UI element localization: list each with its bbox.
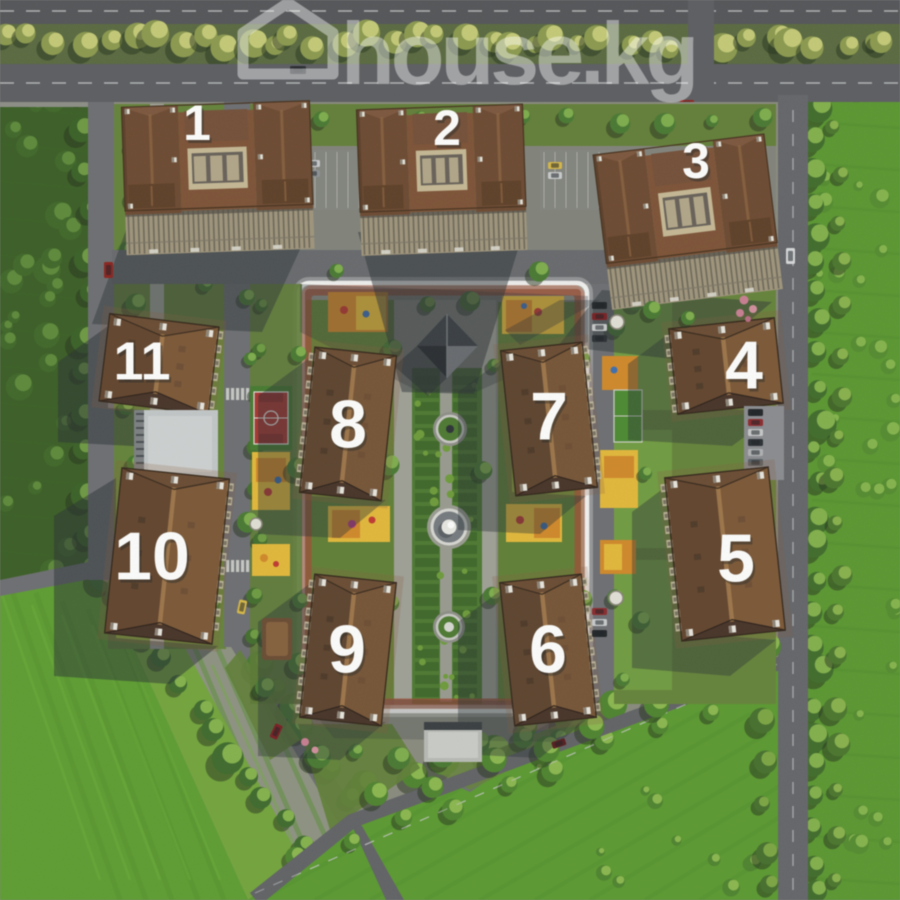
svg-text:house.kg: house.kg [341,4,695,103]
